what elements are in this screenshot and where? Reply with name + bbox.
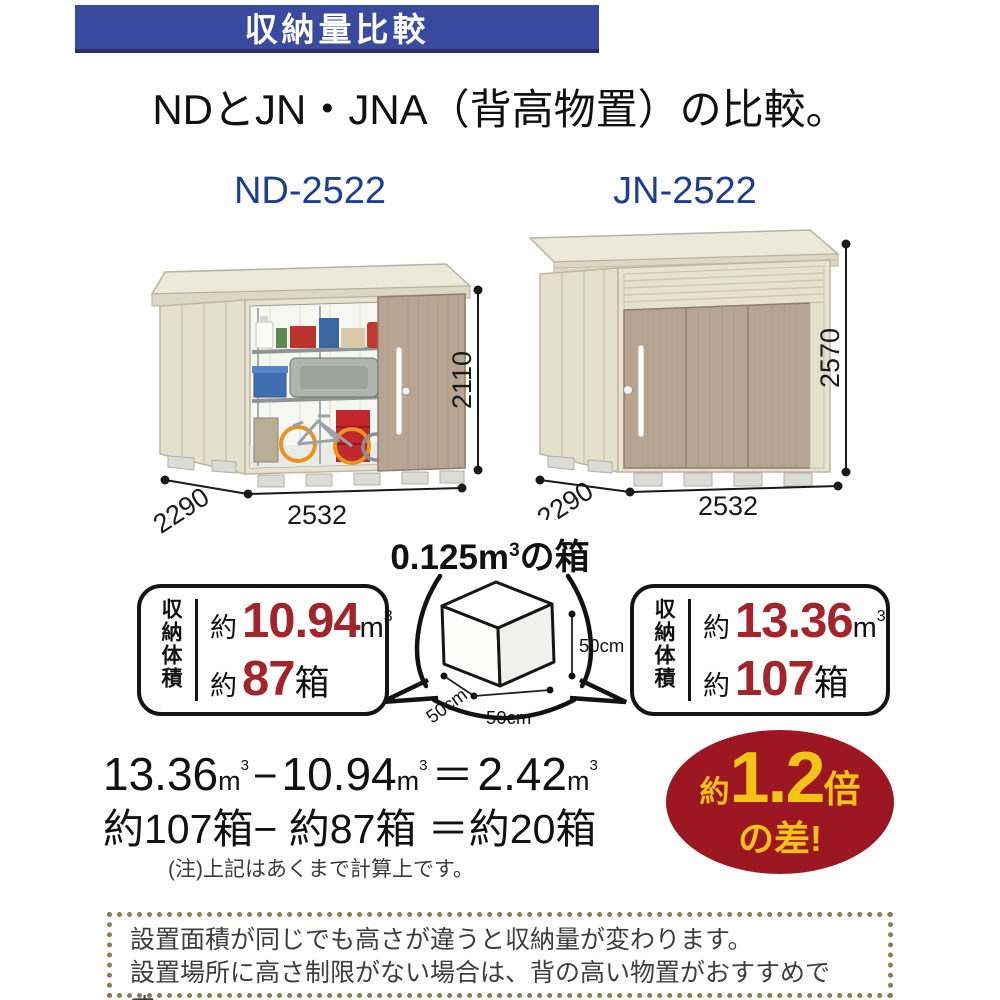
boxes-row-jn: 約107箱 xyxy=(703,651,886,707)
footer-line: 設置場所に高さ制限がない場合は、背の高い物置がおすすめです。 xyxy=(130,957,870,1000)
boxes-row-nd: 約87箱 xyxy=(210,651,393,707)
cube-dim-right: 50cm xyxy=(579,635,624,656)
nd-depth-label: 2290 xyxy=(148,482,215,540)
model-label-jn: JN-2522 xyxy=(540,170,830,213)
title-banner: 収納量比較 xyxy=(75,5,599,53)
volume-row-jn: 約13.36m3 xyxy=(703,593,886,649)
jn-door-handle xyxy=(638,345,644,437)
capacity-label-nd: 収納体積 xyxy=(155,598,185,702)
nd-width-label: 2532 xyxy=(287,500,347,530)
jn-width-label: 2532 xyxy=(698,491,758,520)
calculation-boxes: 約107箱− 約87箱 ＝約20箱 xyxy=(103,795,596,855)
volume-row-nd: 約10.94m3 xyxy=(210,593,393,649)
nd-door-handle xyxy=(396,347,402,435)
jn-door xyxy=(624,302,825,468)
calculation-note: (注)上記はあくまで計算上です。 xyxy=(168,853,474,883)
cube-dim-depth: 50cm xyxy=(422,684,471,728)
nd-door-lock xyxy=(402,387,410,395)
cube xyxy=(442,582,554,686)
difference-badge: 約 1.2 倍 の差! xyxy=(666,730,894,874)
model-label-nd: ND-2522 xyxy=(170,170,450,213)
cube-dim-bottom: 50cm xyxy=(486,707,531,728)
shed-illustration-nd: 2532 2290 2110 xyxy=(140,250,500,540)
shed-illustration-jn: 2532 2290 2570 xyxy=(500,210,900,520)
jn-height-label: 2570 xyxy=(815,328,845,388)
reference-box-illustration: 50cm 50cm 50cm xyxy=(374,572,634,740)
page-title: NDとJN・JNA（背高物置）の比較。 xyxy=(0,76,1000,137)
nd-interior xyxy=(250,302,392,468)
infographic-page: 収納量比較 NDとJN・JNA（背高物置）の比較。 ND-2522 JN-252… xyxy=(0,0,1000,1000)
nd-height-label: 2110 xyxy=(447,351,477,409)
banner-title: 収納量比較 xyxy=(245,3,430,51)
calculation-volume: 13.36m3−10.94m3＝2.42m3 xyxy=(103,742,598,803)
jn-door-lock xyxy=(624,386,633,395)
capacity-bubble-jn: 収納体積 約13.36m3 約107箱 xyxy=(630,584,890,716)
divider xyxy=(195,599,198,701)
capacity-label-jn: 収納体積 xyxy=(648,598,678,702)
divider xyxy=(688,599,691,701)
capacity-bubble-nd: 収納体積 約10.94m3 約87箱 xyxy=(137,584,389,716)
nd-side-wall xyxy=(160,300,245,474)
jn-side-wall xyxy=(540,268,618,472)
footer-note-box: 設置面積が同じでも高さが違うと収納量が変わります。 設置場所に高さ制限がない場合… xyxy=(107,912,893,998)
footer-line: 設置面積が同じでも高さが違うと収納量が変わります。 xyxy=(130,924,870,957)
